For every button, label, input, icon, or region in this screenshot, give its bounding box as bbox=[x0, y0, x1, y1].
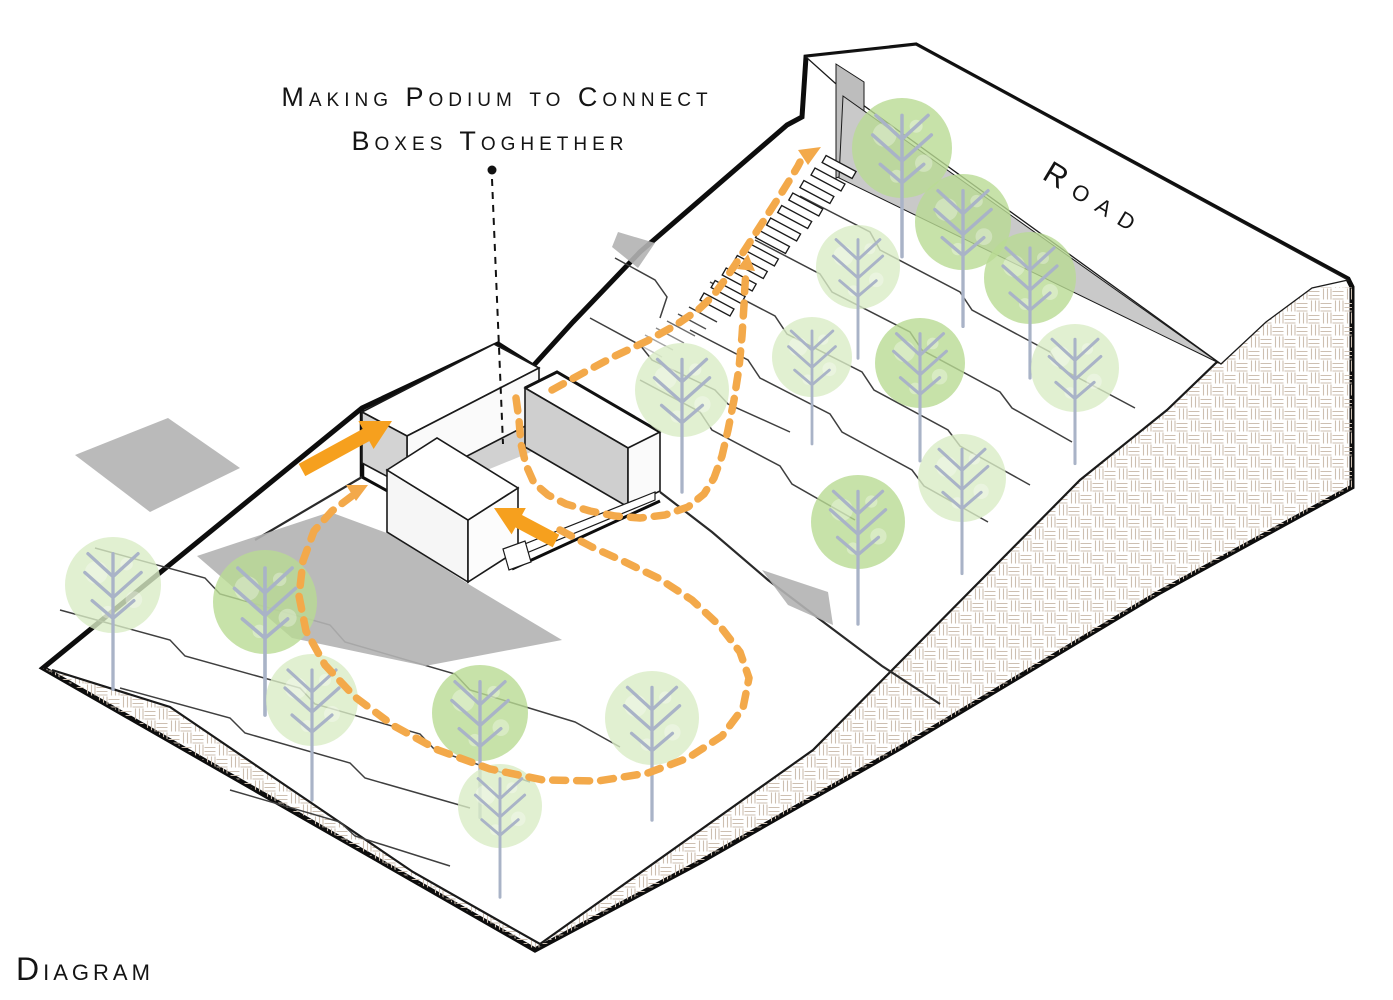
diagram-label: Diagram bbox=[16, 951, 154, 988]
leader-dot bbox=[488, 166, 497, 175]
diagram-stage: Making Podium to Connect Boxes Toghether… bbox=[0, 0, 1393, 1000]
shadow bbox=[75, 418, 240, 512]
title-line-2: Boxes Toghether bbox=[352, 126, 629, 157]
title-line-1: Making Podium to Connect bbox=[281, 82, 712, 113]
site-diagram-canvas bbox=[0, 0, 1393, 1000]
